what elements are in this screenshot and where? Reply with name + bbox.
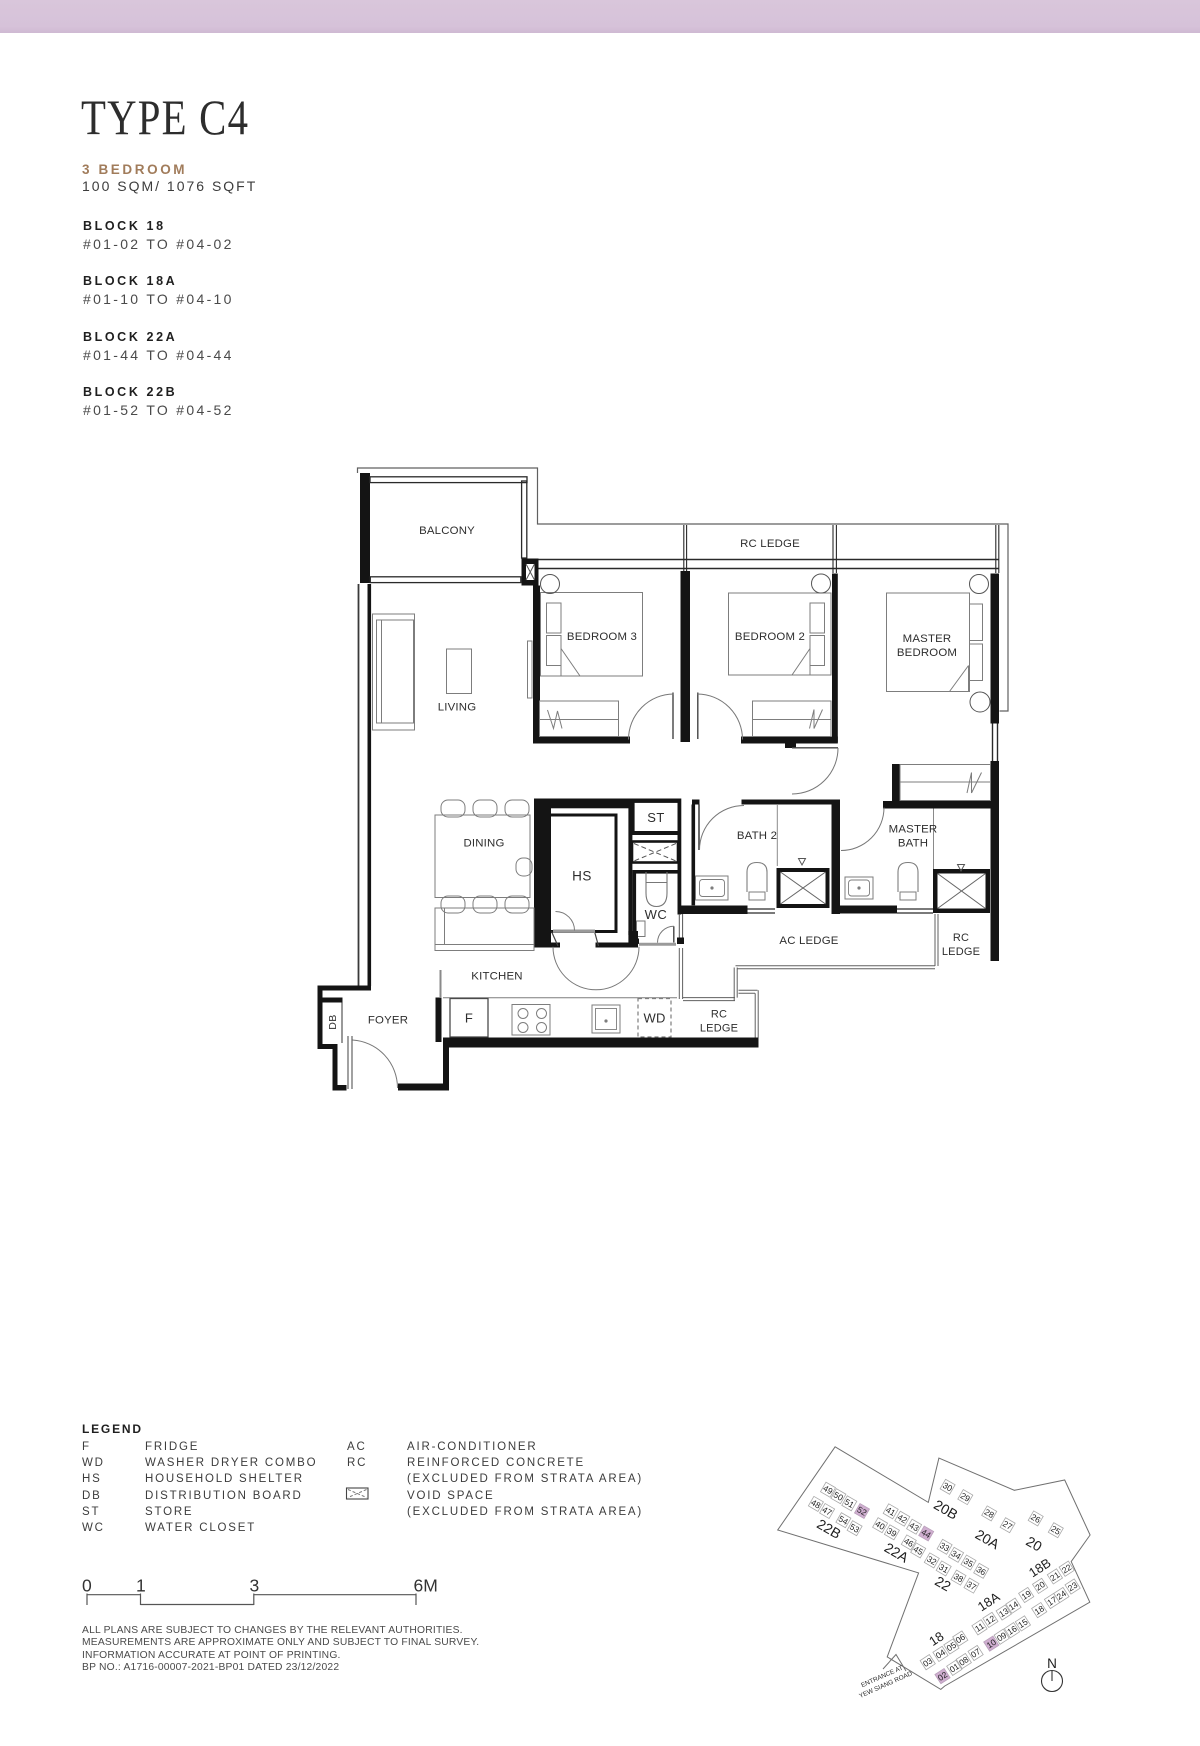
svg-text:F: F [465, 1011, 473, 1026]
svg-text:LIVING: LIVING [438, 702, 477, 714]
svg-text:0: 0 [82, 1576, 92, 1596]
svg-text:HS: HS [572, 869, 592, 884]
svg-text:MASTER: MASTER [903, 633, 952, 645]
svg-text:BATH: BATH [898, 838, 928, 850]
svg-text:MASTER: MASTER [889, 824, 938, 836]
svg-text:N: N [1047, 1656, 1057, 1671]
svg-text:RC: RC [711, 1009, 727, 1021]
svg-text:LEDGE: LEDGE [700, 1023, 738, 1035]
svg-text:KITCHEN: KITCHEN [471, 971, 522, 983]
svg-text:BEDROOM 3: BEDROOM 3 [567, 631, 637, 643]
svg-text:RC LEDGE: RC LEDGE [740, 538, 800, 550]
svg-text:1: 1 [136, 1576, 146, 1596]
svg-text:WD: WD [643, 1011, 665, 1026]
svg-text:FOYER: FOYER [368, 1015, 408, 1027]
svg-text:3: 3 [250, 1576, 260, 1596]
svg-text:RC: RC [953, 932, 969, 944]
svg-text:DB: DB [327, 1014, 339, 1029]
svg-text:DINING: DINING [463, 838, 504, 850]
svg-text:WC: WC [645, 907, 668, 922]
svg-text:6M: 6M [414, 1576, 438, 1596]
svg-text:LEDGE: LEDGE [942, 946, 980, 958]
svg-text:BEDROOM 2: BEDROOM 2 [735, 631, 805, 643]
svg-text:BATH 2: BATH 2 [737, 830, 777, 842]
svg-text:ST: ST [647, 810, 665, 825]
svg-text:AC LEDGE: AC LEDGE [779, 935, 838, 947]
svg-text:BALCONY: BALCONY [419, 525, 475, 537]
svg-text:BEDROOM: BEDROOM [897, 647, 957, 659]
